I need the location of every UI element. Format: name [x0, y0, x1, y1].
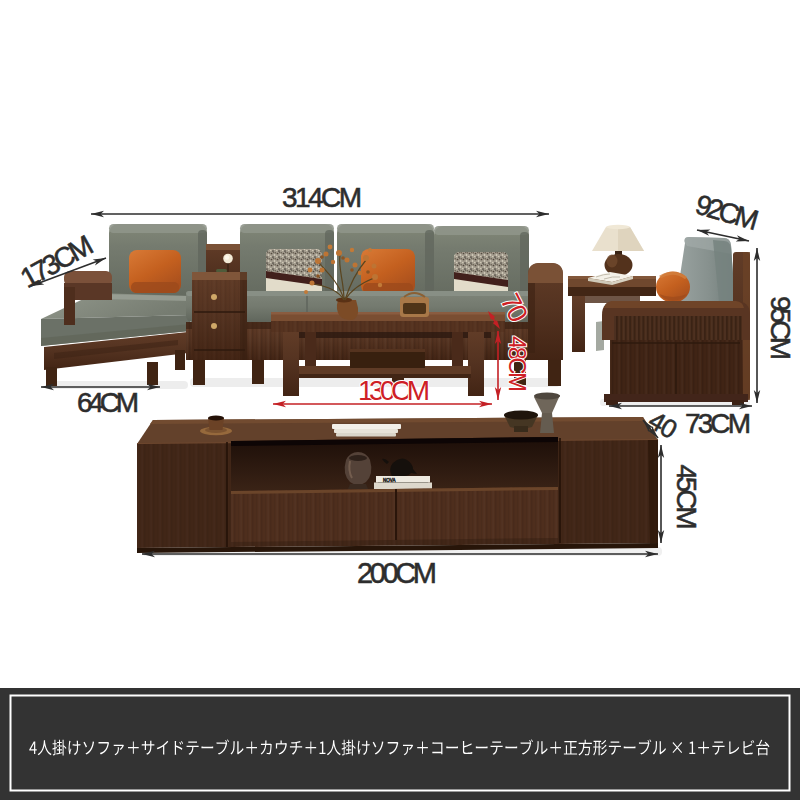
svg-text:NOVA: NOVA: [383, 478, 395, 483]
svg-text:48CM: 48CM: [504, 336, 531, 392]
svg-text:130CM: 130CM: [358, 375, 430, 406]
svg-text:314CM: 314CM: [282, 182, 362, 213]
svg-text:64CM: 64CM: [77, 387, 139, 418]
svg-text:200CM: 200CM: [357, 557, 437, 589]
svg-text:45CM: 45CM: [671, 465, 702, 530]
svg-text:73CM: 73CM: [685, 408, 751, 439]
svg-text:95CM: 95CM: [765, 296, 796, 360]
